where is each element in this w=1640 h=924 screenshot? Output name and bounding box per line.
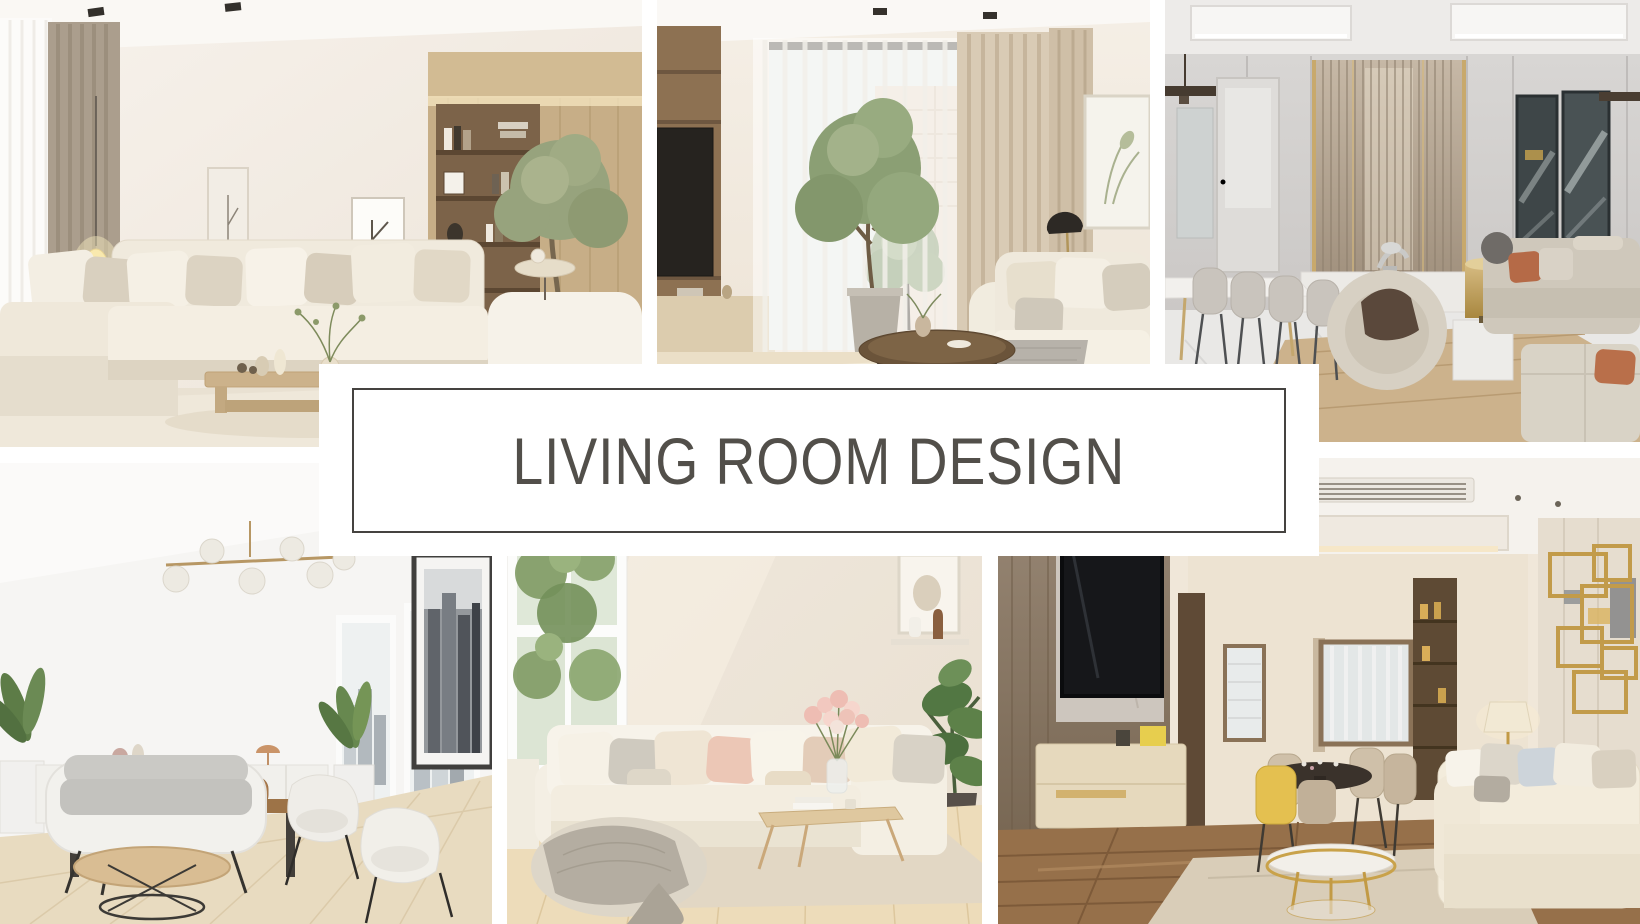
swivel-armchair <box>1327 270 1447 390</box>
ceiling <box>1165 0 1640 58</box>
title-banner-border: LIVING ROOM DESIGN <box>352 388 1286 533</box>
wall-art <box>1085 96 1150 228</box>
slatted-feature-wall <box>1312 60 1466 274</box>
title-banner: LIVING ROOM DESIGN <box>319 364 1319 556</box>
collage-page: LIVING ROOM DESIGN <box>0 0 1640 924</box>
city-art-frame <box>414 555 492 767</box>
page-title-text: LIVING ROOM DESIGN <box>513 424 1126 498</box>
page-title: LIVING ROOM DESIGN <box>513 428 1126 494</box>
sofa <box>1434 742 1640 908</box>
shelf-and-art <box>891 555 969 645</box>
